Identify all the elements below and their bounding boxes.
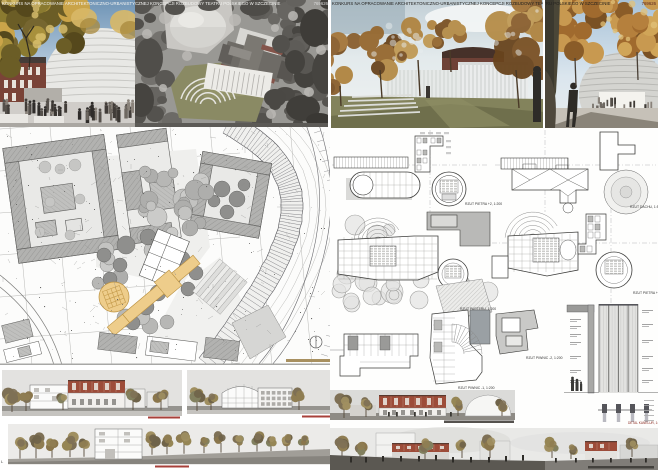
svg-text:L: L <box>1 459 4 464</box>
svg-text:RZUT PIWNIC -2, 1:200: RZUT PIWNIC -2, 1:200 <box>526 356 563 360</box>
svg-text:RZUT PIETRA +2, 1:200: RZUT PIETRA +2, 1:200 <box>633 291 658 295</box>
svg-text:RZUT DACHU, 1:500: RZUT DACHU, 1:500 <box>630 205 658 209</box>
svg-text:RZUT PIETRA +2, 1:200: RZUT PIETRA +2, 1:200 <box>465 202 502 206</box>
